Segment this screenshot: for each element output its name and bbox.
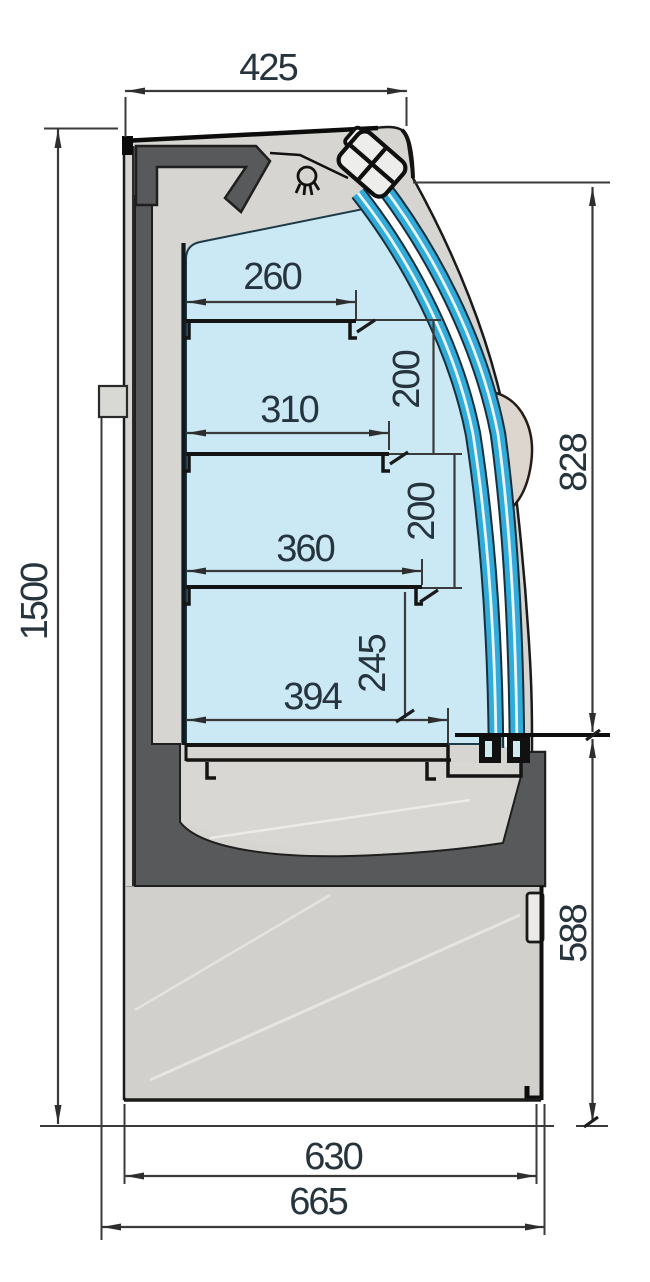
svg-text:588: 588 [553, 904, 595, 962]
svg-text:310: 310 [260, 389, 318, 431]
svg-text:245: 245 [352, 634, 394, 692]
svg-text:1500: 1500 [14, 563, 56, 640]
svg-text:665: 665 [289, 1181, 347, 1223]
svg-text:630: 630 [304, 1136, 362, 1178]
svg-text:200: 200 [401, 482, 443, 540]
svg-text:200: 200 [386, 350, 428, 408]
svg-text:425: 425 [239, 47, 297, 89]
svg-text:260: 260 [243, 256, 301, 298]
svg-text:828: 828 [553, 433, 595, 491]
svg-text:394: 394 [283, 676, 342, 718]
svg-text:360: 360 [276, 528, 334, 570]
